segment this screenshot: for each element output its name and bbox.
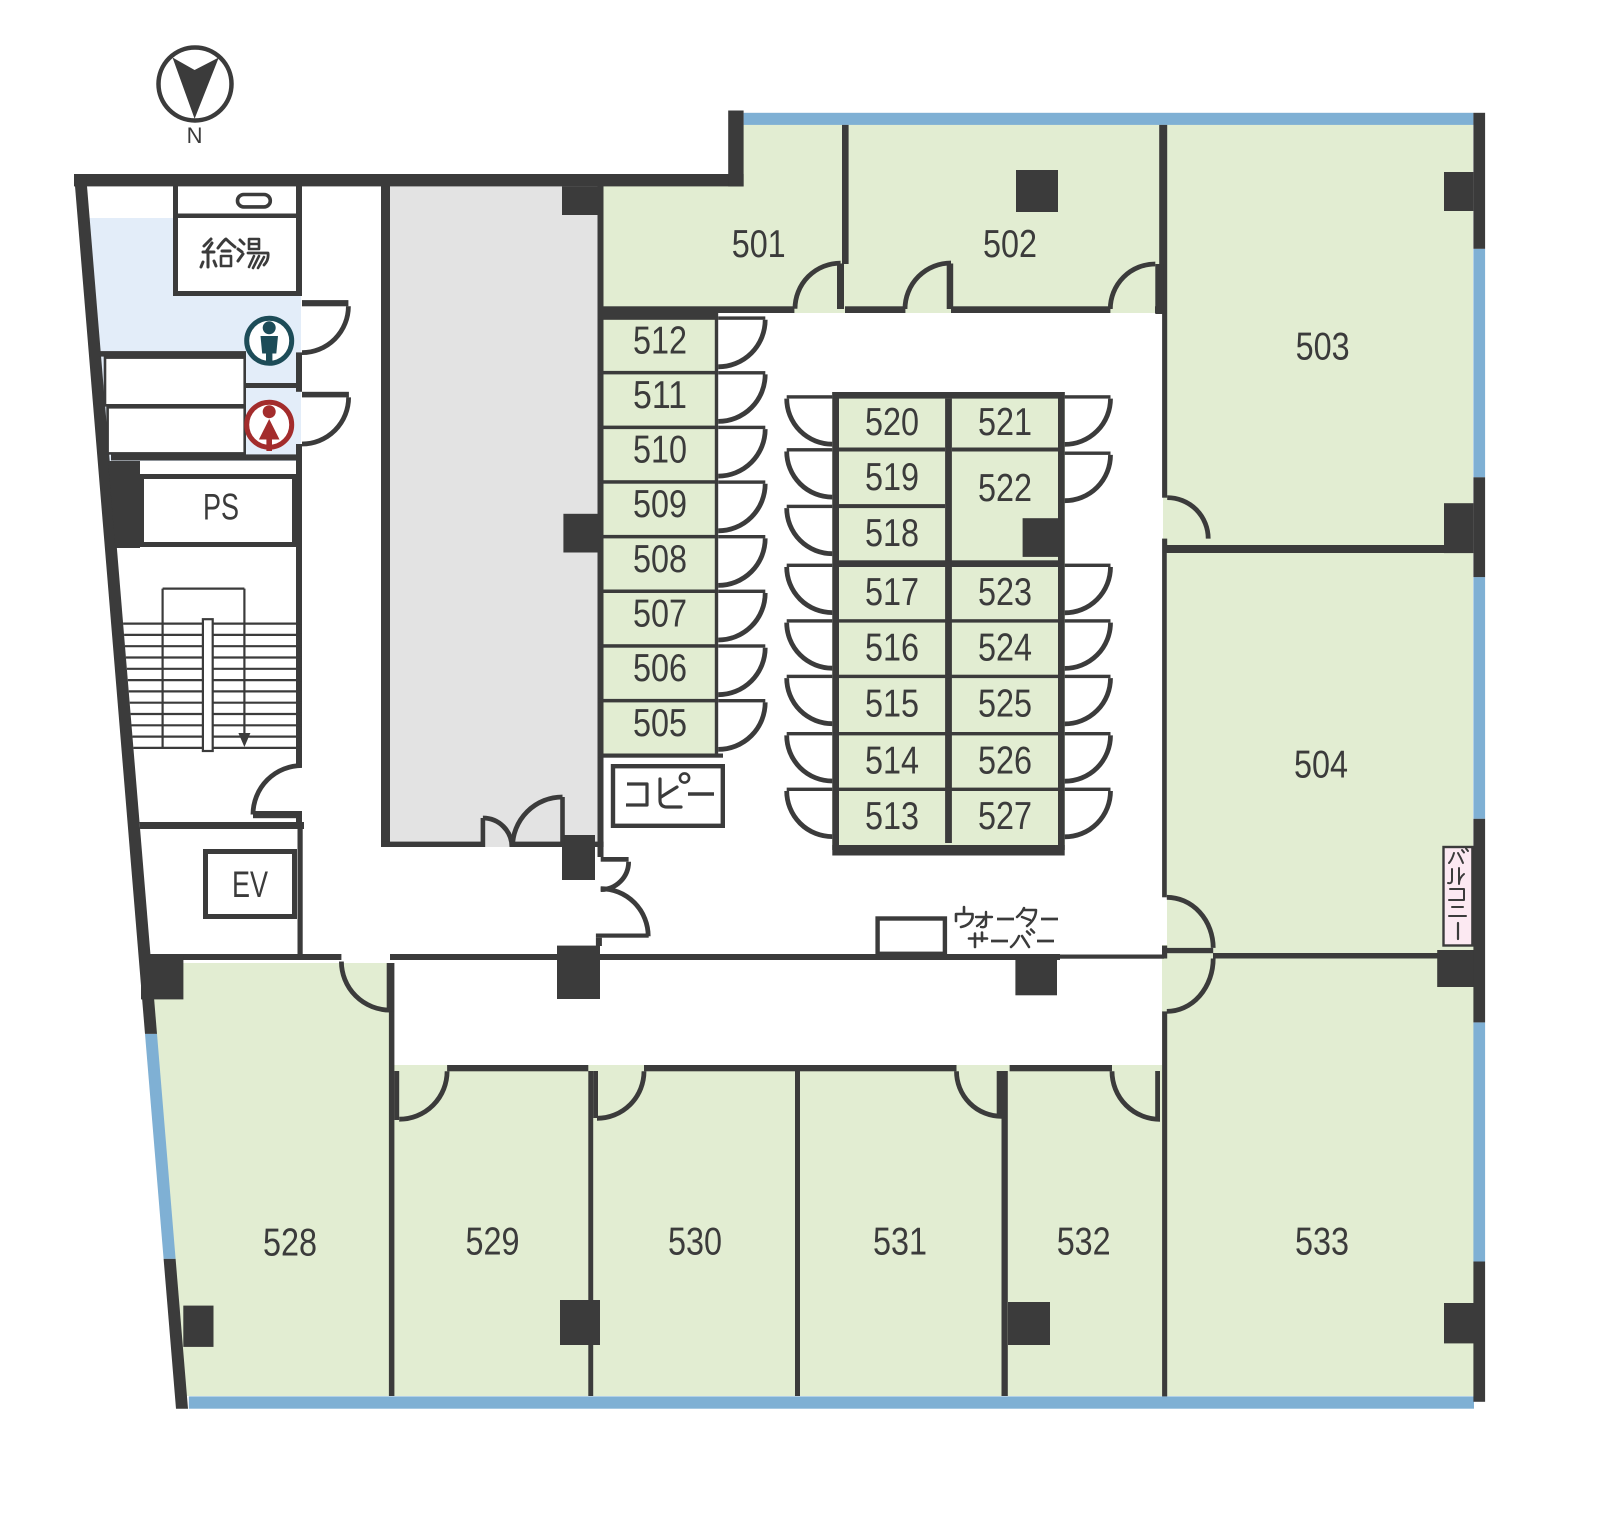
svg-text:514: 514 [865,740,919,783]
svg-text:533: 533 [1295,1220,1349,1263]
svg-text:521: 521 [978,401,1032,444]
svg-text:504: 504 [1294,743,1348,786]
svg-text:528: 528 [263,1221,317,1264]
svg-text:509: 509 [633,483,687,526]
svg-text:529: 529 [466,1220,520,1263]
svg-text:520: 520 [865,401,919,444]
svg-text:515: 515 [865,683,919,726]
svg-text:527: 527 [978,795,1032,838]
svg-text:505: 505 [633,702,687,745]
svg-text:516: 516 [865,627,919,670]
svg-text:522: 522 [978,467,1032,510]
svg-text:503: 503 [1296,326,1350,369]
svg-text:519: 519 [865,456,919,499]
svg-text:512: 512 [633,319,687,362]
svg-text:518: 518 [865,512,919,555]
svg-text:523: 523 [978,571,1032,614]
svg-text:506: 506 [633,647,687,690]
svg-text:511: 511 [633,374,687,417]
svg-text:513: 513 [865,795,919,838]
svg-text:502: 502 [983,223,1037,266]
svg-text:507: 507 [633,593,687,636]
svg-text:524: 524 [978,627,1032,670]
svg-text:525: 525 [978,683,1032,726]
svg-text:517: 517 [865,571,919,614]
svg-text:530: 530 [668,1220,722,1263]
svg-text:531: 531 [873,1220,927,1263]
svg-text:526: 526 [978,740,1032,783]
svg-text:N: N [187,123,203,148]
svg-text:EV: EV [232,864,268,905]
svg-text:501: 501 [732,223,786,266]
svg-text:508: 508 [633,538,687,581]
svg-text:510: 510 [633,429,687,472]
svg-text:PS: PS [203,485,239,527]
svg-text:532: 532 [1057,1220,1111,1263]
